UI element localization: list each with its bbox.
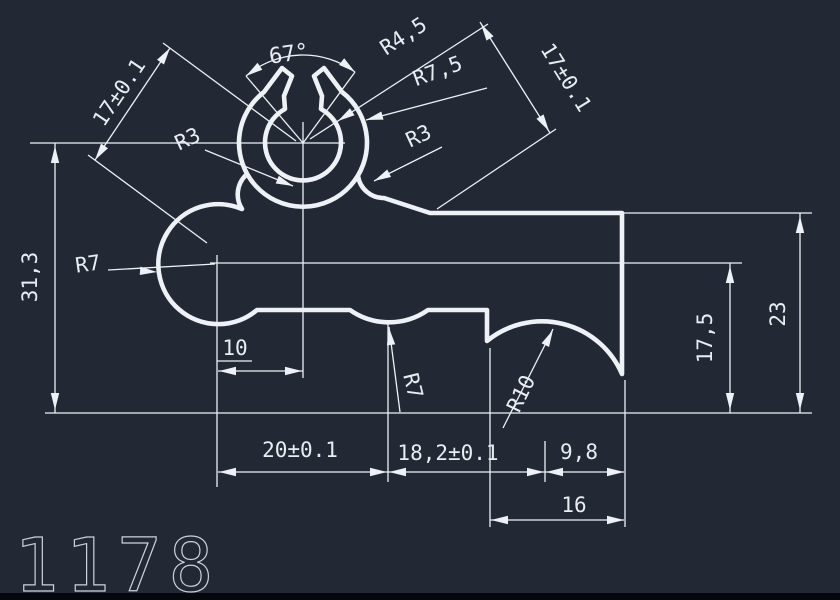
label-dim-10: 10 [222,336,247,360]
label-dim-9-8: 9,8 [560,440,598,464]
cad-drawing-canvas: 17±0.167°R4,5R7,517±0.1R3R3R731,310R7R10… [0,0,840,600]
label-dim-18-2: 18,2±0.1 [397,441,498,465]
drawing-number: 1178 [14,523,220,600]
label-dim-20: 20±0.1 [262,438,338,462]
label-dim-16: 16 [561,493,586,517]
cad-drawing: 17±0.167°R4,5R7,517±0.1R3R3R731,310R7R10… [0,0,840,600]
label-dim-31-3: 31,3 [18,252,42,303]
label-dim-23: 23 [766,301,790,326]
label-rad-r7-left: R7 [74,250,102,277]
bottom-edge-bar [0,593,840,600]
label-dim-17-5: 17,5 [693,313,717,364]
